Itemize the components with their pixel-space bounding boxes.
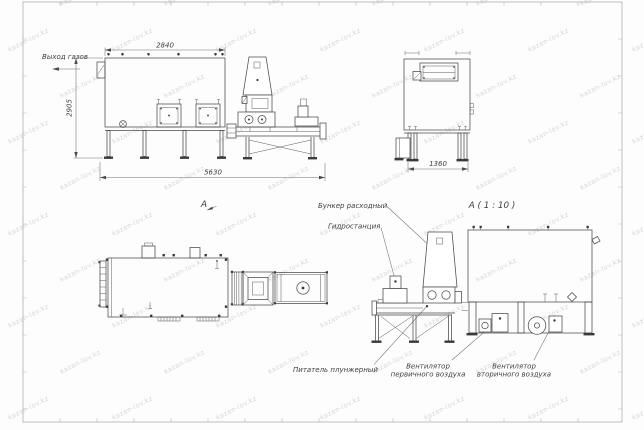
hydraulic-station [383,276,407,303]
plan-hopper-top [243,272,273,305]
side-view: 2840 Выход газов [42,42,326,211]
detail-conveyor-frame [372,315,455,343]
dim-2840-text: 2840 [156,42,174,50]
dimension-5630: 5630 [100,162,325,181]
svg-text:Вентилятор: Вентилятор [492,363,536,371]
burner-panels [157,100,220,128]
plan-bottom-strips [158,317,219,321]
detail-title: А ( 1 : 10 ) [468,201,516,211]
detail-view: А ( 1 : 10 ) Бункер расходный Гидростанц… [293,201,600,379]
dimension-2840: 2840 [105,42,225,57]
plan-feeder-box [274,271,328,304]
front-top-marks [405,51,470,55]
primary-air-fan [479,314,508,333]
svg-text:первичного воздуха: первичного воздуха [391,371,466,379]
front-body [404,59,474,130]
drawing-sheet: kazan-lov.kzkazan-lov.kzkazan-lov.kzkaza… [0,0,644,430]
plan-anchor-symbols [119,260,219,317]
feeder-label: Питатель плунжерный [293,366,378,374]
secondary-air-fan [528,316,562,334]
hydraulic-label: Гидростанция [328,223,380,231]
view-a-marker: А [200,200,217,210]
gas-outlet-label: Выход газов [42,53,88,61]
primary-fan-label: Вентилятор первичного воздуха [391,363,466,379]
furnace-body [97,58,225,127]
sheet-frame [23,2,622,422]
svg-text:вторичного воздуха: вторичного воздуха [477,371,551,379]
svg-text:Вентилятор: Вентилятор [406,363,450,371]
hopper-assembly [238,57,275,127]
plan-coupling [231,271,244,306]
furnace-legs [104,131,226,159]
dimension-1360: 1360 [408,160,468,172]
dim-1360-text: 1360 [429,160,447,168]
plan-left-comb [98,261,106,307]
dim-2905-text: 2905 [66,99,74,117]
dim-5630-text: 5630 [204,169,222,177]
technical-drawing: 2840 Выход газов [0,0,644,430]
detail-hopper [423,232,468,311]
front-view: 1360 [395,51,474,172]
plan-view [98,243,328,321]
conveyor-frame [243,137,317,159]
plan-furnace-top [106,243,228,317]
front-legs [395,127,471,162]
detail-furnace [468,226,600,302]
hopper-label: Бункер расходный [318,202,388,210]
secondary-fan-label: Вентилятор вторичного воздуха [477,363,551,379]
view-a-text: А [200,200,207,210]
